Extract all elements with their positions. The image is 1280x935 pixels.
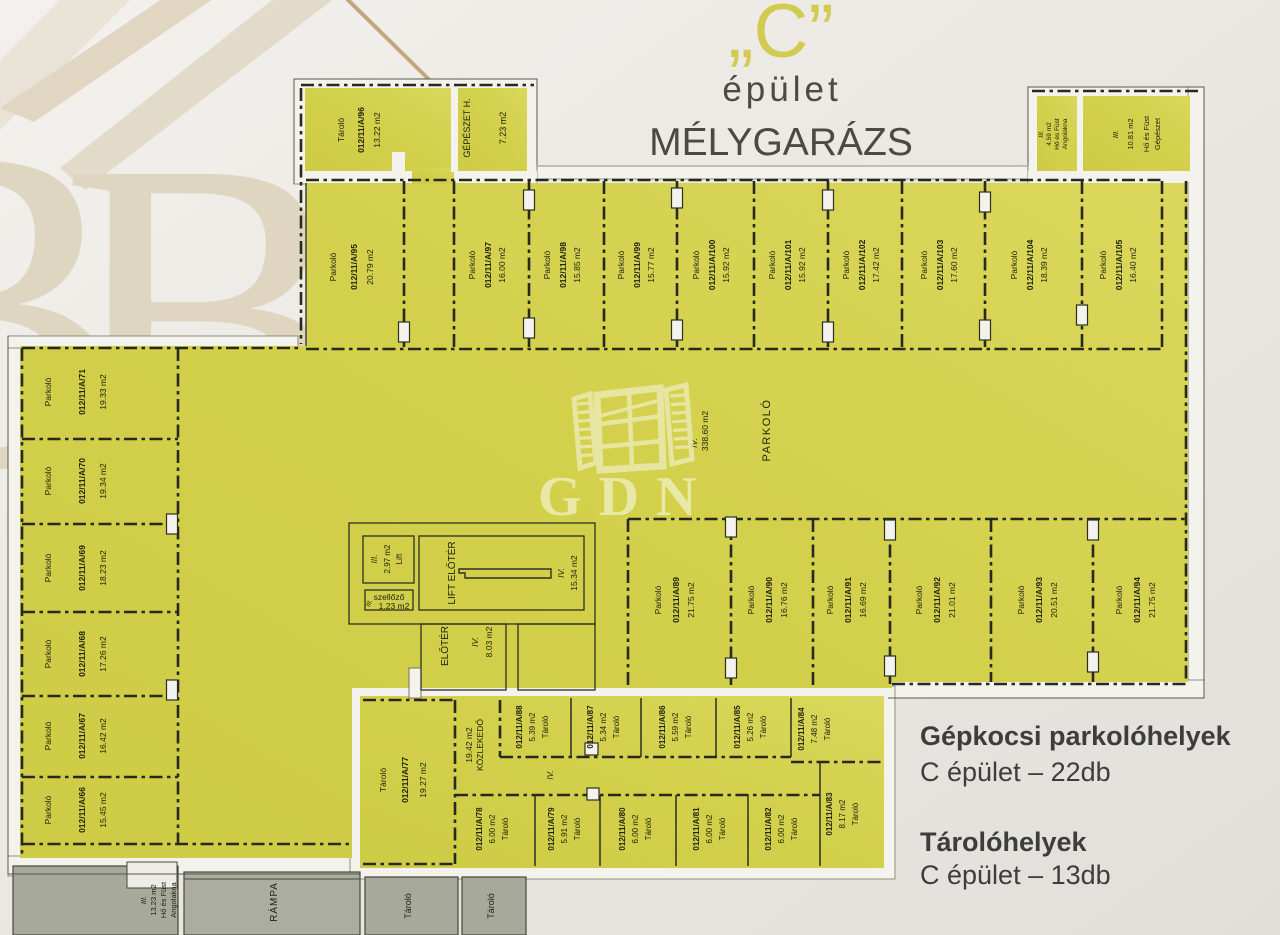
svg-text:IV.: IV. [470, 637, 480, 647]
svg-text:Tároló: Tároló [684, 715, 693, 738]
svg-text:6.00 m2: 6.00 m2 [705, 814, 714, 843]
svg-text:012/11/A/94: 012/11/A/94 [1132, 577, 1142, 623]
svg-text:5.91 m2: 5.91 m2 [560, 814, 569, 843]
svg-text:6.00 m2: 6.00 m2 [488, 814, 497, 843]
svg-text:Parkoló: Parkoló [43, 553, 53, 582]
svg-text:16.76 m2: 16.76 m2 [779, 582, 789, 618]
svg-text:Tároló: Tároló [851, 802, 860, 825]
svg-text:Parkoló: Parkoló [691, 250, 701, 279]
svg-text:012/11/A/71: 012/11/A/71 [77, 369, 87, 415]
svg-text:5.39 m2: 5.39 m2 [528, 712, 537, 741]
svg-text:012/11/A/89: 012/11/A/89 [671, 577, 681, 623]
svg-text:IV.: IV. [546, 770, 555, 779]
svg-text:012/11/A/105: 012/11/A/105 [1114, 239, 1124, 290]
svg-text:8.17 m2: 8.17 m2 [838, 799, 847, 828]
svg-text:012/11/A/102: 012/11/A/102 [857, 239, 867, 290]
svg-text:2.97 m2: 2.97 m2 [383, 544, 392, 573]
svg-text:8.03 m2: 8.03 m2 [484, 626, 494, 657]
svg-text:III.: III. [1038, 130, 1045, 137]
svg-text:Parkoló: Parkoló [43, 377, 53, 406]
svg-text:ELŐTÉR: ELŐTÉR [437, 626, 451, 666]
svg-text:LIFT ELŐTÉR: LIFT ELŐTÉR [444, 541, 458, 604]
svg-text:Tároló: Tároló [378, 768, 388, 792]
svg-text:20.51 m2: 20.51 m2 [1049, 582, 1059, 618]
svg-text:KÖZLEKEDŐ: KÖZLEKEDŐ [475, 719, 485, 771]
svg-text:Parkoló: Parkoló [467, 250, 477, 279]
svg-text:19.33 m2: 19.33 m2 [98, 374, 108, 410]
svg-text:15.85 m2: 15.85 m2 [572, 247, 582, 283]
svg-text:012/11/A/80: 012/11/A/80 [618, 807, 627, 851]
svg-text:012/11/A/103: 012/11/A/103 [935, 239, 945, 290]
svg-text:15.92 m2: 15.92 m2 [721, 247, 731, 283]
svg-text:Parkoló: Parkoló [767, 250, 777, 279]
svg-text:Parkoló: Parkoló [919, 250, 929, 279]
svg-text:III.: III. [370, 555, 379, 564]
svg-text:III.: III. [1111, 130, 1120, 138]
svg-text:Parkoló: Parkoló [542, 250, 552, 279]
svg-text:012/11/A/98: 012/11/A/98 [558, 242, 568, 288]
svg-text:Hő és Füst: Hő és Füst [1142, 115, 1151, 152]
svg-text:15.77 m2: 15.77 m2 [646, 247, 656, 283]
svg-text:012/11/A/91: 012/11/A/91 [843, 577, 853, 623]
svg-text:Tároló: Tároló [759, 715, 768, 738]
svg-text:012/11/A/81: 012/11/A/81 [692, 807, 701, 851]
svg-text:012/11/A/96: 012/11/A/96 [356, 107, 366, 153]
svg-text:16.69 m2: 16.69 m2 [858, 582, 868, 618]
svg-text:012/11/A/84: 012/11/A/84 [797, 707, 806, 751]
svg-text:Parkoló: Parkoló [43, 639, 53, 668]
svg-text:„C”: „C” [728, 0, 834, 74]
svg-text:6.00 m2: 6.00 m2 [631, 814, 640, 843]
svg-text:012/11/A/83: 012/11/A/83 [825, 792, 834, 836]
svg-text:Tároló: Tároló [403, 893, 413, 919]
svg-text:5.34 m2: 5.34 m2 [599, 712, 608, 741]
svg-text:Tároló: Tároló [541, 715, 550, 738]
svg-text:III.: III. [139, 896, 148, 904]
svg-text:15.45 m2: 15.45 m2 [98, 792, 108, 828]
svg-text:012/11/A/67: 012/11/A/67 [77, 713, 87, 759]
svg-text:338.60 m2: 338.60 m2 [700, 411, 710, 451]
svg-text:Parkoló: Parkoló [43, 721, 53, 750]
svg-text:15.92 m2: 15.92 m2 [797, 247, 807, 283]
svg-text:16.00 m2: 16.00 m2 [497, 247, 507, 283]
svg-text:012/11/A/70: 012/11/A/70 [77, 458, 87, 504]
svg-text:Parkoló: Parkoló [616, 250, 626, 279]
svg-text:012/11/A/93: 012/11/A/93 [1034, 577, 1044, 623]
svg-text:19.34 m2: 19.34 m2 [98, 463, 108, 499]
svg-text:Parkoló: Parkoló [328, 252, 338, 281]
svg-text:012/11/A/95: 012/11/A/95 [349, 244, 359, 290]
svg-text:13.23 m2: 13.23 m2 [149, 884, 158, 915]
svg-text:17.60 m2: 17.60 m2 [949, 247, 959, 283]
svg-text:012/11/A/90: 012/11/A/90 [764, 577, 774, 623]
svg-text:Tároló: Tároló [790, 817, 799, 840]
svg-text:19.42 m2: 19.42 m2 [464, 727, 474, 763]
svg-text:Hő és Füst: Hő és Füst [1054, 118, 1061, 150]
svg-text:012/11/A/77: 012/11/A/77 [400, 757, 410, 803]
svg-text:012/11/A/104: 012/11/A/104 [1025, 239, 1035, 290]
svg-text:GÉPÉSZET H.: GÉPÉSZET H. [462, 98, 472, 157]
svg-text:Tároló: Tároló [336, 118, 346, 142]
svg-text:17.26 m2: 17.26 m2 [98, 636, 108, 672]
svg-text:18.23 m2: 18.23 m2 [98, 550, 108, 586]
svg-text:1.23 m2: 1.23 m2 [379, 601, 410, 611]
svg-text:012/11/A/85: 012/11/A/85 [733, 705, 742, 749]
svg-text:Gépkocsi parkolóhelyek: Gépkocsi parkolóhelyek [920, 721, 1232, 751]
svg-text:012/11/A/101: 012/11/A/101 [783, 239, 793, 290]
svg-text:6.00 m2: 6.00 m2 [777, 814, 786, 843]
svg-text:012/11/A/82: 012/11/A/82 [764, 807, 773, 851]
svg-text:Parkoló: Parkoló [914, 585, 924, 614]
svg-text:17.42 m2: 17.42 m2 [871, 247, 881, 283]
svg-text:012/11/A/78: 012/11/A/78 [475, 807, 484, 851]
svg-text:Tároló: Tároló [823, 717, 832, 740]
svg-text:GDN: GDN [538, 466, 713, 528]
svg-text:Hő és Füst: Hő és Füst [159, 881, 168, 918]
svg-text:Parkoló: Parkoló [746, 585, 756, 614]
svg-text:19.27 m2: 19.27 m2 [418, 762, 428, 798]
svg-text:Parkoló: Parkoló [43, 795, 53, 824]
svg-text:012/11/A/86: 012/11/A/86 [658, 705, 667, 749]
svg-text:7.23 m2: 7.23 m2 [498, 112, 508, 145]
svg-text:Parkoló: Parkoló [1098, 250, 1108, 279]
svg-text:Angolakna: Angolakna [1062, 118, 1069, 149]
svg-text:Tárolóhelyek: Tárolóhelyek [920, 827, 1088, 857]
svg-text:Tároló: Tároló [486, 893, 496, 919]
svg-text:Tároló: Tároló [612, 715, 621, 738]
svg-text:PARKOLÓ: PARKOLÓ [760, 399, 773, 462]
svg-text:Lift: Lift [395, 553, 404, 564]
svg-text:18.39 m2: 18.39 m2 [1039, 247, 1049, 283]
svg-text:Tároló: Tároló [718, 817, 727, 840]
svg-text:13.22 m2: 13.22 m2 [372, 112, 382, 148]
svg-text:21.01 m2: 21.01 m2 [947, 582, 957, 618]
svg-text:16.40 m2: 16.40 m2 [1128, 247, 1138, 283]
svg-text:7.48 m2: 7.48 m2 [810, 714, 819, 743]
svg-text:Parkoló: Parkoló [825, 585, 835, 614]
svg-text:16.42 m2: 16.42 m2 [98, 718, 108, 754]
svg-text:012/11/A/69: 012/11/A/69 [77, 545, 87, 591]
svg-text:RÁMPA: RÁMPA [267, 882, 280, 922]
svg-text:21.75 m2: 21.75 m2 [686, 582, 696, 618]
svg-text:Parkoló: Parkoló [841, 250, 851, 279]
svg-text:012/11/A/88: 012/11/A/88 [515, 705, 524, 749]
svg-text:012/11/A/68: 012/11/A/68 [77, 631, 87, 677]
svg-text:15.34 m2: 15.34 m2 [569, 555, 579, 591]
svg-text:Gépészet: Gépészet [1153, 117, 1162, 150]
svg-text:012/11/A/87: 012/11/A/87 [586, 705, 595, 749]
svg-text:Parkoló: Parkoló [1016, 585, 1026, 614]
svg-text:Parkoló: Parkoló [43, 466, 53, 495]
svg-text:012/11/A/100: 012/11/A/100 [707, 239, 717, 290]
svg-text:20.79 m2: 20.79 m2 [365, 249, 375, 285]
svg-text:Tároló: Tároló [501, 817, 510, 840]
svg-text:MÉLYGARÁZS: MÉLYGARÁZS [649, 121, 913, 164]
svg-text:10.81 m2: 10.81 m2 [1126, 118, 1135, 149]
svg-text:5.26 m2: 5.26 m2 [746, 712, 755, 741]
svg-text:Tároló: Tároló [573, 817, 582, 840]
svg-text:012/11/A/97: 012/11/A/97 [483, 242, 493, 288]
svg-text:IV.: IV. [556, 568, 566, 578]
svg-text:C épület – 13db: C épület – 13db [920, 860, 1111, 890]
svg-text:Parkoló: Parkoló [1009, 250, 1019, 279]
svg-text:4.59 m2: 4.59 m2 [1046, 122, 1053, 146]
svg-text:012/11/A/66: 012/11/A/66 [77, 787, 87, 833]
svg-text:Angolakna: Angolakna [169, 881, 178, 917]
svg-text:C épület – 22db: C épület – 22db [920, 757, 1111, 787]
svg-text:5.59 m2: 5.59 m2 [671, 712, 680, 741]
svg-text:Parkoló: Parkoló [653, 585, 663, 614]
svg-text:Tároló: Tároló [644, 817, 653, 840]
svg-text:012/11/A/79: 012/11/A/79 [547, 807, 556, 851]
svg-text:21.75 m2: 21.75 m2 [1147, 582, 1157, 618]
svg-text:012/11/A/99: 012/11/A/99 [632, 242, 642, 288]
svg-text:épület: épület [722, 70, 841, 109]
svg-text:012/11/A/92: 012/11/A/92 [932, 577, 942, 623]
svg-text:Parkoló: Parkoló [1114, 585, 1124, 614]
